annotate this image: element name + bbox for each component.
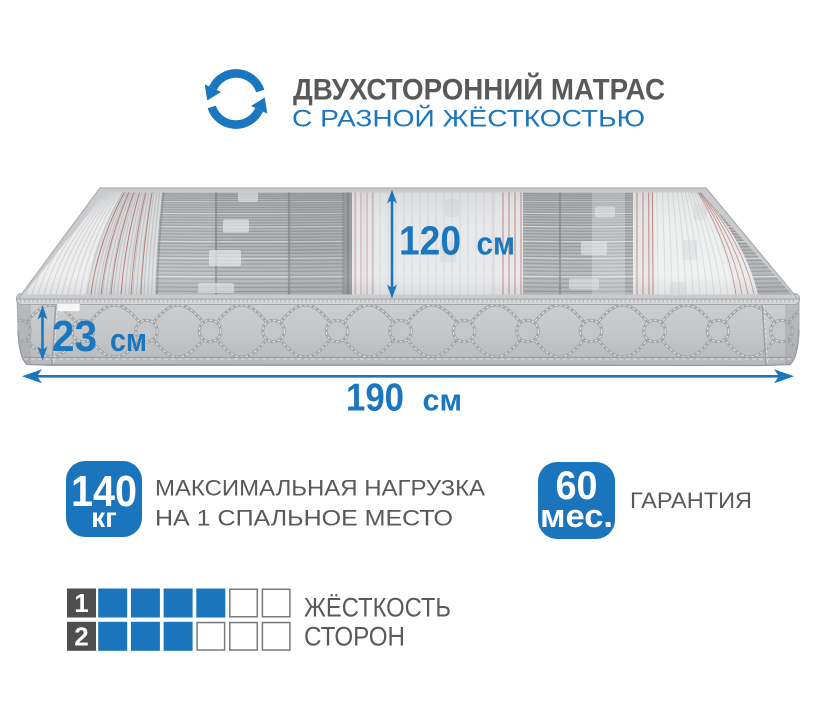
- svg-text:1: 1: [74, 588, 88, 618]
- svg-text:ГАРАНТИЯ: ГАРАНТИЯ: [630, 488, 752, 513]
- svg-text:см: см: [423, 383, 463, 418]
- svg-text:23: 23: [52, 312, 97, 361]
- svg-text:2: 2: [74, 621, 88, 651]
- svg-text:190: 190: [346, 377, 404, 420]
- svg-text:кг: кг: [91, 502, 117, 533]
- svg-text:МАКСИМАЛЬНАЯ НАГРУЗКА: МАКСИМАЛЬНАЯ НАГРУЗКА: [155, 476, 485, 501]
- svg-text:см: см: [110, 322, 147, 358]
- svg-text:мес.: мес.: [540, 498, 613, 534]
- svg-text:ДВУХСТОРОННИЙ МАТРАС: ДВУХСТОРОННИЙ МАТРАС: [293, 73, 665, 107]
- svg-text:С РАЗНОЙ ЖЁСТКОСТЬЮ: С РАЗНОЙ ЖЁСТКОСТЬЮ: [292, 105, 645, 133]
- svg-text:см: см: [477, 226, 516, 262]
- svg-text:120: 120: [399, 218, 461, 264]
- svg-text:ЖЁСТКОСТЬ: ЖЁСТКОСТЬ: [304, 593, 451, 623]
- svg-text:НА 1 СПАЛЬНОЕ МЕСТО: НА 1 СПАЛЬНОЕ МЕСТО: [155, 506, 453, 531]
- svg-text:СТОРОН: СТОРОН: [304, 622, 405, 652]
